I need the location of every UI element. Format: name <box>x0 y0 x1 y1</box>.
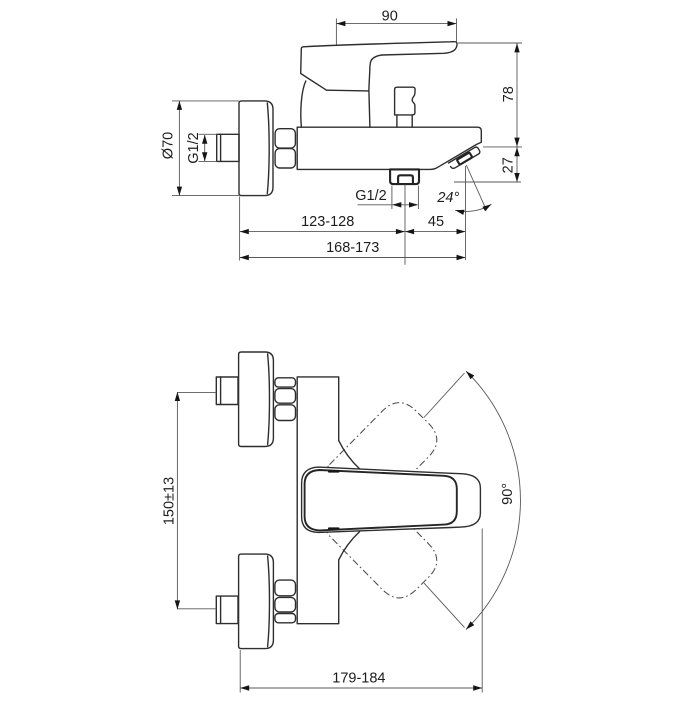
svg-text:90°: 90° <box>500 483 516 505</box>
svg-text:G1/2: G1/2 <box>186 132 202 163</box>
svg-text:Ø70: Ø70 <box>161 132 177 159</box>
svg-text:78: 78 <box>501 86 517 102</box>
svg-text:24°: 24° <box>436 190 459 206</box>
svg-text:G1/2: G1/2 <box>355 188 386 204</box>
svg-text:150±13: 150±13 <box>162 477 178 525</box>
svg-text:179-184: 179-184 <box>332 671 385 687</box>
svg-text:27: 27 <box>501 157 517 173</box>
svg-text:168-173: 168-173 <box>326 240 379 256</box>
svg-text:123-128: 123-128 <box>301 214 354 230</box>
svg-text:45: 45 <box>428 214 444 230</box>
svg-text:90: 90 <box>382 8 398 24</box>
